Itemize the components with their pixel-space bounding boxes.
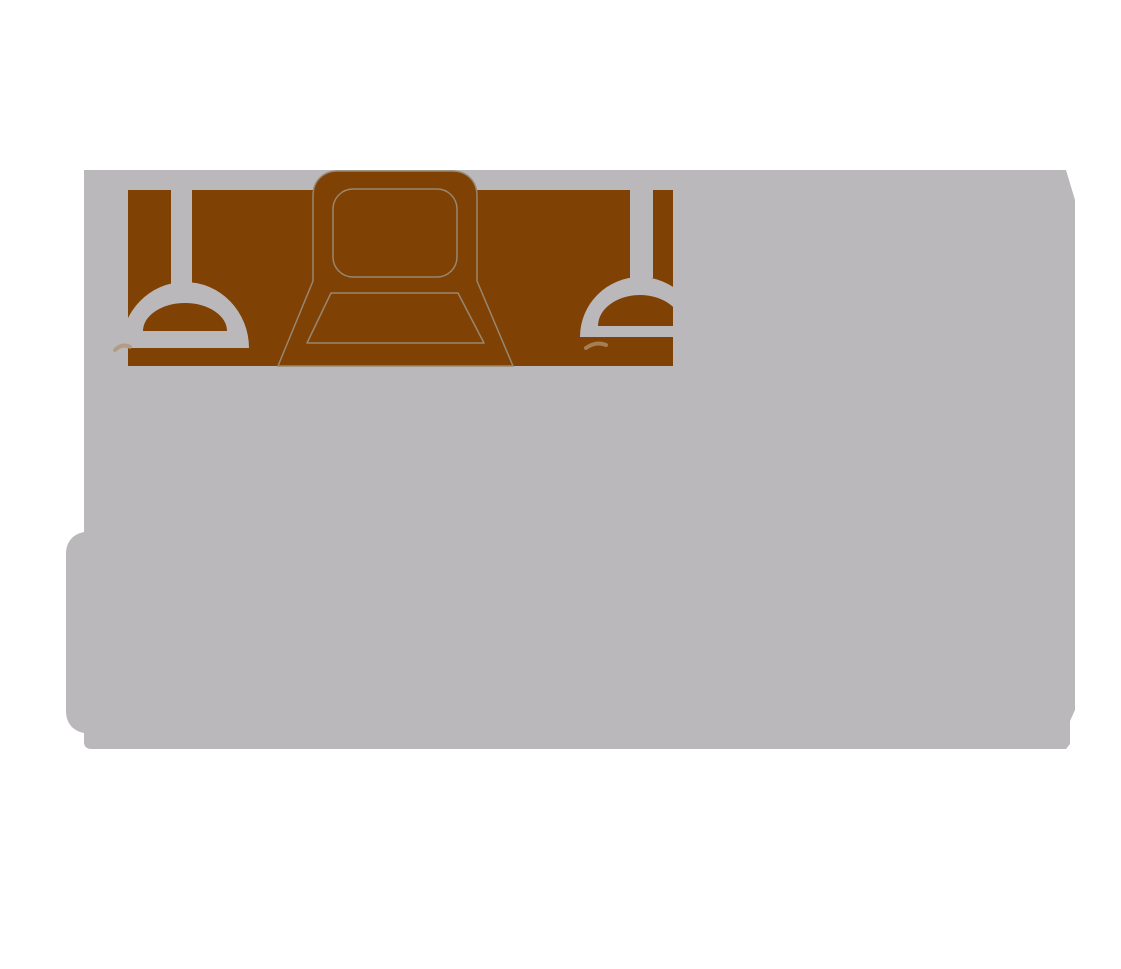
armchair-icon	[278, 171, 513, 366]
armchair-silhouette	[278, 171, 513, 366]
illustration-stage	[0, 0, 1121, 969]
lamp-left-cord	[171, 190, 192, 285]
illustration-canvas	[0, 0, 1121, 969]
lamp-right-cord	[630, 190, 653, 278]
